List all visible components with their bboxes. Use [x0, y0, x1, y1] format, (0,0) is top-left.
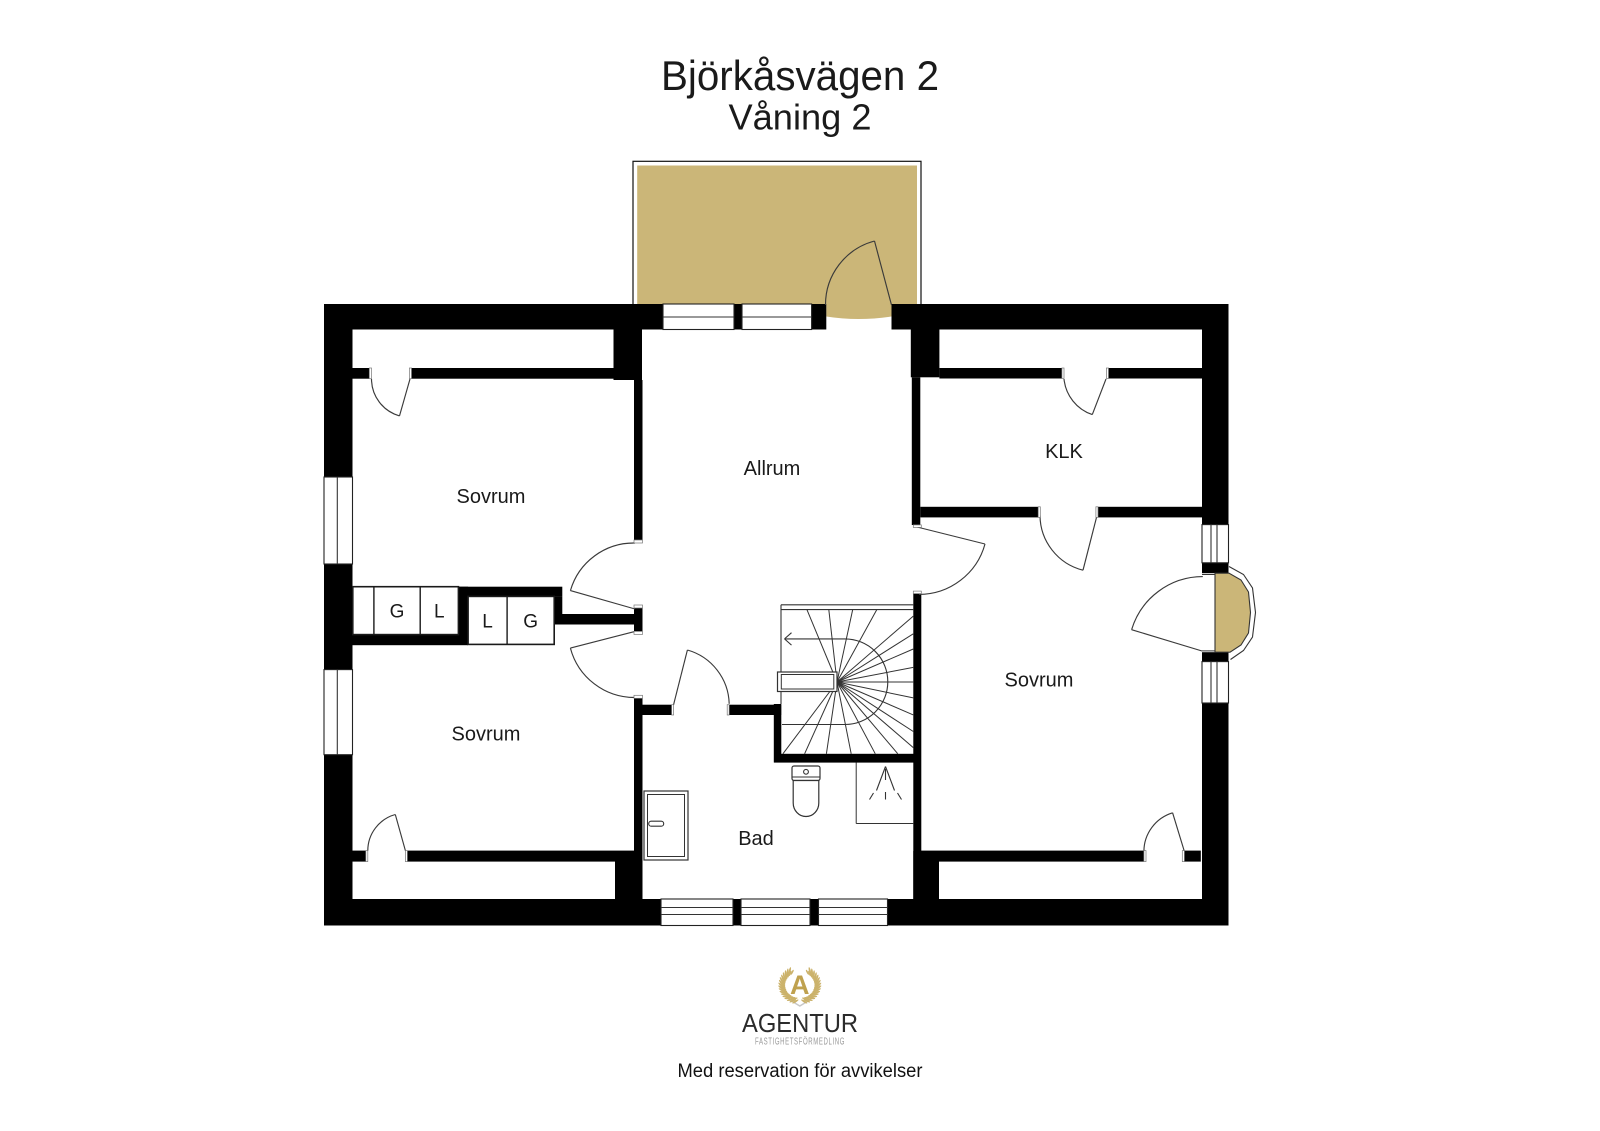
svg-text:AGENTUR: AGENTUR: [742, 1010, 858, 1038]
svg-text:A: A: [790, 970, 810, 1000]
svg-text:FASTIGHETSFÖRMEDLING: FASTIGHETSFÖRMEDLING: [755, 1036, 845, 1048]
svg-text:Björkåsvägen 2: Björkåsvägen 2: [661, 52, 939, 99]
svg-text:Allrum: Allrum: [744, 458, 801, 480]
svg-text:Sovrum: Sovrum: [452, 724, 521, 746]
svg-text:Sovrum: Sovrum: [457, 486, 526, 508]
svg-text:G: G: [523, 611, 538, 632]
svg-text:KLK: KLK: [1045, 441, 1083, 463]
svg-text:L: L: [434, 602, 445, 623]
svg-text:Bad: Bad: [738, 828, 774, 850]
svg-text:L: L: [482, 611, 493, 632]
svg-text:Sovrum: Sovrum: [1005, 670, 1074, 692]
svg-text:Våning 2: Våning 2: [729, 97, 872, 138]
svg-text:Med reservation för avvikelser: Med reservation för avvikelser: [678, 1061, 924, 1082]
svg-text:G: G: [390, 602, 405, 623]
